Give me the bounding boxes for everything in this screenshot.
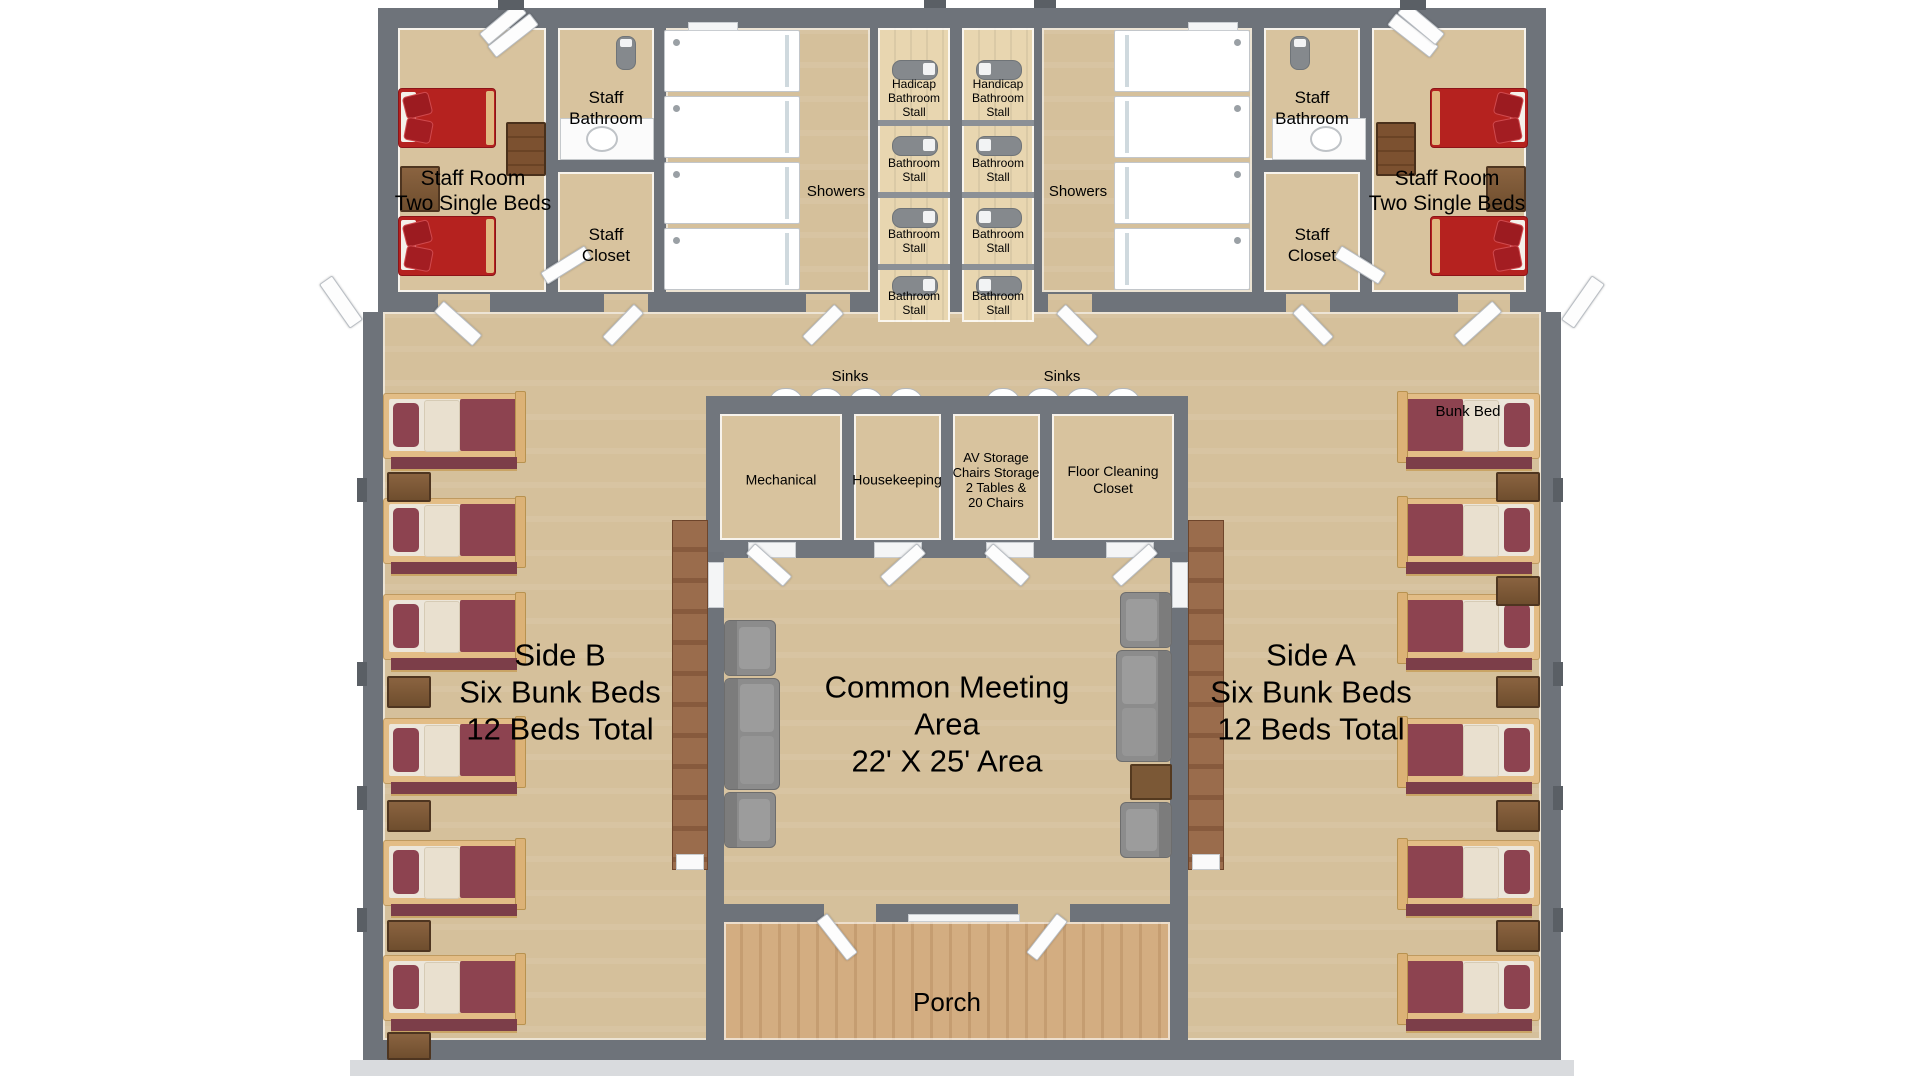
sinks-right-label: Sinks — [1044, 368, 1081, 386]
side-b-label: Side BSix Bunk Beds12 Beds Total — [459, 637, 661, 748]
porch-wall-segment — [706, 904, 824, 922]
bunk-bed — [1400, 718, 1540, 796]
sofa — [1116, 650, 1172, 762]
bathroom-stall-label: Bathroom Stall — [879, 227, 949, 255]
common-area-east-wall — [1170, 552, 1188, 1040]
shower-stall — [664, 228, 800, 290]
window — [357, 786, 367, 810]
housekeeping-label: Housekeeping — [852, 472, 942, 489]
bathroom-stall-label: Bathroom Stall — [879, 289, 949, 317]
wall-cap — [1034, 0, 1056, 8]
nightstand — [1496, 920, 1540, 952]
toilet — [616, 36, 636, 70]
stall-divider — [878, 192, 950, 198]
bunk-bed-label: Bunk Bed — [1435, 403, 1500, 421]
handicap-stall-left-label: Hadicap Bathroom Stall — [879, 77, 949, 119]
window — [357, 908, 367, 932]
staff-single-bed — [398, 216, 496, 276]
wall-cap — [498, 0, 524, 10]
nightstand — [387, 676, 431, 708]
staff-bathroom-left-label: StaffBathroom — [569, 87, 643, 129]
window — [1553, 478, 1563, 502]
counter-shelf — [1192, 854, 1220, 870]
shower-stall — [664, 30, 800, 92]
stall-divider — [962, 264, 1034, 270]
staff-closet-left-label: StaffCloset — [582, 224, 630, 266]
side-table — [1130, 764, 1172, 800]
window — [357, 478, 367, 502]
armchair — [1120, 592, 1172, 648]
foundation-ledge — [350, 1060, 1574, 1076]
bunk-bed — [383, 498, 523, 576]
floor-cleaning-closet-label: Floor CleaningCloset — [1067, 463, 1158, 497]
bunk-bed — [383, 393, 523, 471]
nightstand — [1496, 576, 1540, 606]
common-area-west-wall — [706, 552, 724, 1040]
wall-cap — [924, 0, 946, 8]
wood-counter — [672, 520, 708, 870]
bunk-bed — [1400, 955, 1540, 1033]
staff-bathroom-right-label: StaffBathroom — [1275, 87, 1349, 129]
window — [1188, 22, 1238, 31]
shower-stall — [664, 162, 800, 224]
stall-divider — [878, 264, 950, 270]
bathroom-sink — [586, 126, 618, 152]
handicap-stall-right-label: Handicap Bathroom Stall — [963, 77, 1033, 119]
staff-single-bed — [1430, 88, 1528, 148]
bathroom-stall-label: Bathroom Stall — [879, 156, 949, 184]
staff-closet-right-label: StaffCloset — [1288, 224, 1336, 266]
bunk-bed — [383, 840, 523, 918]
bathroom-stall-label: Bathroom Stall — [963, 289, 1033, 317]
porch-floor — [724, 922, 1170, 1040]
staff-room-right-label: Staff RoomTwo Single Beds — [1369, 166, 1525, 216]
toilet — [976, 136, 1022, 156]
armchair — [724, 620, 776, 676]
bathroom-stall-label: Bathroom Stall — [963, 227, 1033, 255]
sofa — [724, 678, 780, 790]
bunk-bed — [383, 955, 523, 1033]
shower-stall — [1114, 228, 1250, 290]
stall-divider — [962, 120, 1034, 126]
window — [908, 914, 1020, 922]
window — [1553, 908, 1563, 932]
window — [688, 22, 738, 31]
stall-divider — [878, 120, 950, 126]
sinks-left-label: Sinks — [832, 368, 869, 386]
exterior-door-leaf — [1561, 275, 1605, 328]
armchair — [1120, 802, 1172, 858]
shower-stall — [1114, 96, 1250, 158]
nightstand — [387, 472, 431, 502]
staff-single-bed — [398, 88, 496, 148]
floor-plan: Staff RoomTwo Single Beds Staff RoomTwo … — [0, 0, 1920, 1080]
toilet — [976, 208, 1022, 228]
shower-stall — [1114, 162, 1250, 224]
toilet — [1290, 36, 1310, 70]
showers-left-label: Showers — [807, 183, 865, 201]
shower-stall — [1114, 30, 1250, 92]
bunk-bed — [1400, 840, 1540, 918]
shower-stall — [664, 96, 800, 158]
bunk-bed — [1400, 498, 1540, 576]
nightstand — [1496, 676, 1540, 708]
porch-label: Porch — [913, 987, 981, 1017]
window — [357, 662, 367, 686]
toilet — [892, 136, 938, 156]
doorway — [604, 294, 648, 312]
toilet — [892, 208, 938, 228]
wall-cap — [1400, 0, 1426, 10]
staff-single-bed — [1430, 216, 1528, 276]
nightstand — [387, 1032, 431, 1060]
exterior-door-leaf — [319, 275, 363, 328]
porch-wall-segment — [1070, 904, 1188, 922]
av-storage-label: AV StorageChairs Storage 2 Tables &20 Ch… — [953, 450, 1040, 510]
nightstand — [387, 920, 431, 952]
window — [1172, 562, 1188, 608]
showers-right-label: Showers — [1049, 183, 1107, 201]
staff-room-left-label: Staff RoomTwo Single Beds — [395, 166, 551, 216]
side-a-label: Side ASix Bunk Beds12 Beds Total — [1210, 637, 1412, 748]
window — [708, 562, 724, 608]
nightstand — [1496, 472, 1540, 502]
armchair — [724, 792, 776, 848]
window — [1553, 662, 1563, 686]
nightstand — [387, 800, 431, 832]
window — [1553, 786, 1563, 810]
bathroom-sink — [1310, 126, 1342, 152]
nightstand — [1496, 800, 1540, 832]
common-meeting-area-label: Common MeetingArea22' X 25' Area — [825, 669, 1070, 780]
bathroom-stall-label: Bathroom Stall — [963, 156, 1033, 184]
mechanical-label: Mechanical — [746, 472, 817, 489]
counter-shelf — [676, 854, 704, 870]
stall-divider — [962, 192, 1034, 198]
